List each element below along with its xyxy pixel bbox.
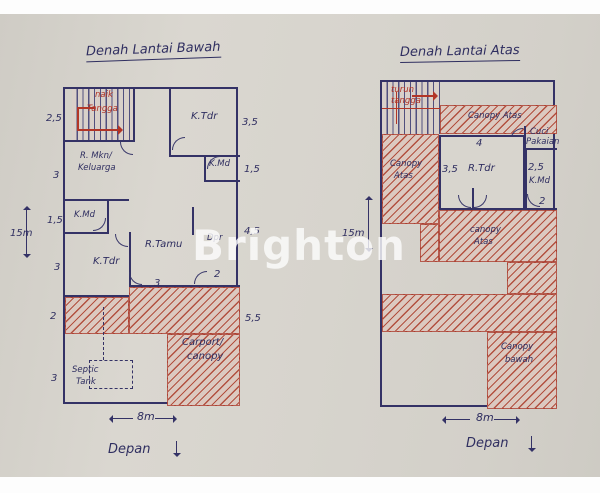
- stairs-path-line: [412, 95, 434, 97]
- room-label-carport: canopy: [187, 351, 223, 362]
- room-label-canopy-left: Atas: [394, 172, 413, 181]
- carport-hatch: [129, 287, 240, 334]
- room-label-canopy-top: Canopy Atas: [468, 112, 522, 121]
- dim-label: 2: [50, 311, 56, 322]
- wall: [65, 199, 129, 201]
- room-label-canopy-mid: Atas: [474, 238, 493, 247]
- front-label: Depan: [108, 444, 150, 455]
- room-label-carport: Carport/: [182, 337, 223, 348]
- dim-label: 3: [53, 170, 59, 181]
- room-label-septic: Tank: [76, 378, 96, 387]
- room-label-canopy-bottom: Canopy: [501, 343, 533, 352]
- arrow-left-icon: [442, 416, 446, 424]
- upper-floor-title: Denah Lantai Atas: [400, 43, 520, 63]
- room-label-canopy-bottom: bawah: [505, 356, 533, 365]
- stairs-up-arrow-icon: [118, 125, 123, 135]
- height-dim-label: 15m: [10, 228, 32, 239]
- arrow-down-icon: [173, 453, 181, 457]
- room-label-bath: K.Md: [529, 177, 550, 186]
- width-dim-line: [494, 419, 518, 420]
- room-label-laundry: Pakaian: [526, 138, 559, 147]
- door-arc-icon: [194, 271, 207, 284]
- width-dim-line: [446, 419, 470, 420]
- room-label-dining: Keluarga: [78, 164, 116, 173]
- room-label-laundry: Cuci: [530, 128, 548, 137]
- canopy-hatch: [420, 224, 439, 262]
- arrow-left-icon: [109, 415, 113, 423]
- stairs-label: naik: [95, 91, 113, 100]
- wall: [204, 155, 206, 182]
- door-arc-icon: [172, 137, 185, 150]
- room-label-dining: R. Mkn/: [80, 152, 112, 161]
- wall: [65, 232, 109, 234]
- arrow-up-icon: [365, 196, 373, 200]
- door-arc-icon: [115, 234, 128, 247]
- canopy-hatch: [382, 294, 557, 332]
- dim-label: 3: [54, 262, 60, 273]
- dim-label: 2: [214, 269, 220, 280]
- photo-white-edge-top: [0, 0, 600, 14]
- room-label-septic: Septic: [72, 366, 98, 375]
- room-label-canopy-left: Canopy: [390, 160, 422, 169]
- room-label-bedroom-top: K.Tdr: [191, 111, 217, 122]
- dim-label: 1,5: [47, 215, 63, 226]
- septic-pipe-dashed-line: [103, 307, 104, 360]
- wall: [524, 148, 557, 150]
- door-arc-icon: [527, 194, 540, 207]
- stairs-path-line: [77, 129, 119, 131]
- arrow-up-icon: [23, 206, 31, 210]
- dim-label: 2,5: [528, 162, 544, 173]
- wall: [525, 148, 527, 210]
- arrow-down-icon: [528, 448, 536, 452]
- dim-label: 3,5: [242, 117, 258, 128]
- arrow-right-icon: [516, 416, 520, 424]
- carport-hatch: [65, 297, 129, 334]
- room-label-living: R.Tamu: [145, 239, 182, 250]
- wall: [133, 89, 135, 142]
- dim-label: 1,5: [244, 164, 260, 175]
- canopy-hatch: [439, 210, 557, 262]
- stairs-line: [382, 108, 440, 109]
- wall: [169, 89, 171, 157]
- width-dim-line: [155, 418, 175, 419]
- door-arc-icon: [207, 156, 220, 169]
- dim-label: 3: [154, 278, 160, 289]
- door-center-post: [472, 188, 474, 209]
- door-arc-icon: [120, 142, 133, 155]
- stairs-label: turun: [391, 86, 414, 95]
- wall: [204, 180, 240, 182]
- stairs-label: tangga: [391, 97, 421, 106]
- dim-label: 3,5: [442, 164, 458, 175]
- wall: [107, 199, 109, 234]
- door-arc-icon: [93, 218, 106, 231]
- width-dim-label: 8m: [476, 411, 494, 424]
- dim-label: 3: [51, 373, 57, 384]
- stairs-path-line: [77, 107, 79, 131]
- brighton-watermark: Brighton: [192, 221, 406, 270]
- photo-white-edge-bottom: [0, 477, 600, 493]
- room-label-bedroom-bottom: K.Tdr: [93, 256, 119, 267]
- arrow-right-icon: [173, 415, 177, 423]
- room-label-canopy-mid: canopy: [470, 226, 501, 235]
- canopy-hatch: [507, 262, 557, 294]
- stairs-down-arrow-icon: [433, 91, 438, 101]
- upper-floor-plan: turun tangga Canopy Atas Cuci Pakaian Ca…: [380, 80, 555, 407]
- arrow-down-icon: [23, 254, 31, 258]
- width-dim-label: 8m: [137, 410, 155, 423]
- dim-label: 4: [476, 138, 482, 149]
- room-label-bath-left: K.Md: [74, 211, 95, 220]
- room-label-bedroom: R.Tdr: [468, 163, 495, 174]
- dim-label: 5,5: [245, 313, 261, 324]
- front-label: Depan: [466, 438, 508, 449]
- floorplan-photo: Denah Lantai Bawah naik Tangga K.Tdr K.M…: [0, 0, 600, 493]
- dim-label: 2,5: [46, 113, 62, 124]
- stairs-label: Tangga: [87, 105, 118, 114]
- width-dim-line: [113, 418, 133, 419]
